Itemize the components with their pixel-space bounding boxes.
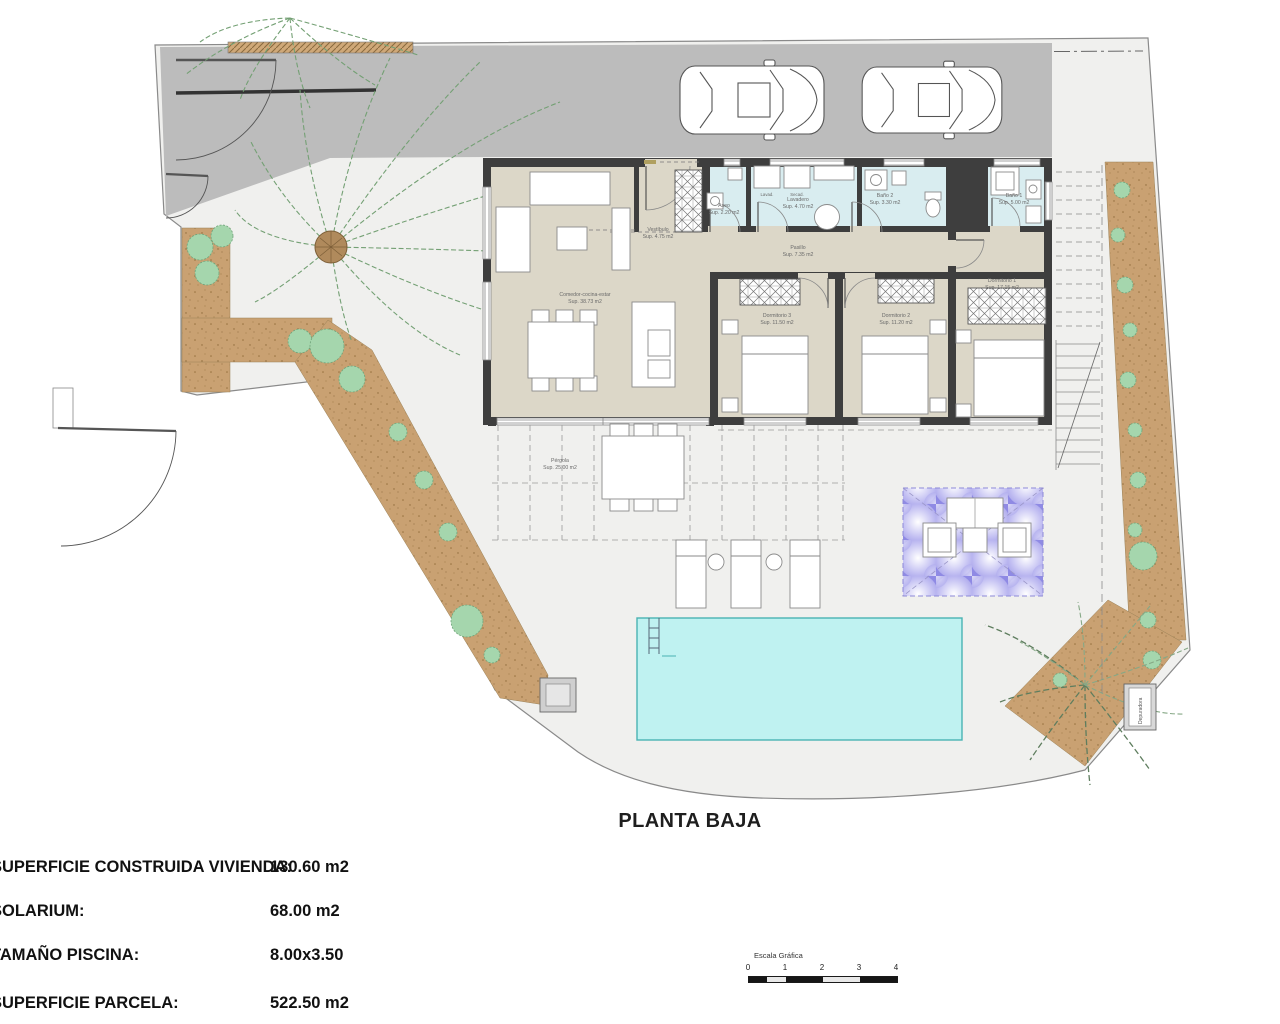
- stat-label: SUPERFICIE PARCELA:: [0, 994, 179, 1013]
- washer: [754, 166, 780, 188]
- stat-value: 522.50 m2: [270, 994, 349, 1013]
- label-dormitorio1-name: Dormitorio 1: [988, 278, 1016, 284]
- coffee-table: [557, 227, 587, 250]
- outdoor-dining-set: [602, 424, 684, 511]
- scale-tick: 1: [783, 963, 787, 972]
- label-vestibulo-name: Vestíbulo: [647, 227, 668, 233]
- dryer: [784, 166, 810, 188]
- wardrobe-vestibulo: [675, 170, 702, 232]
- dining-table-set: [528, 310, 597, 391]
- label-living-area: Sup. 38.73 m2: [568, 299, 602, 305]
- graphic-scale-ticks: 0 1 2 3 4: [748, 963, 896, 973]
- side-gate: [53, 388, 176, 546]
- label-bano1-name: Baño 1: [1006, 193, 1023, 199]
- label-aseo-name: Aseo: [718, 203, 730, 209]
- wardrobe-dormitorio3: [740, 279, 800, 305]
- tv-sideboard: [612, 208, 630, 270]
- equipment-label: Depuradora: [1138, 697, 1144, 724]
- swimming-pool: [637, 618, 962, 740]
- label-dormitorio3-area: Sup. 11.50 m2: [760, 320, 793, 326]
- lounge-table: [963, 528, 987, 552]
- label-dormitorio2-name: Dormitorio 2: [882, 313, 910, 319]
- kitchen-island: [632, 302, 675, 387]
- label-pasillo-area: Sup. 7.35 m2: [783, 252, 814, 258]
- floor-plan-page: Depuradora Comedor-cocina-estar Sup. 38.…: [0, 0, 1280, 1024]
- scale-tick: 3: [857, 963, 861, 972]
- stat-label: TAMAÑO PISCINA:: [0, 946, 139, 965]
- stat-label: SOLARIUM:: [0, 902, 85, 921]
- label-vestibulo-area: Sup. 4.75 m2: [643, 234, 674, 240]
- label-bano2-name: Baño 2: [877, 193, 894, 199]
- label-pergola-name: Pérgola: [551, 458, 569, 464]
- label-pasillo-name: Pasillo: [790, 245, 805, 251]
- stat-value: 130.60 m2: [270, 858, 349, 877]
- label-dormitorio1-area: Sup. 17.15 m2: [985, 285, 1019, 291]
- label-dormitorio2-area: Sup. 11.20 m2: [879, 320, 912, 326]
- sun-loungers: [676, 540, 820, 608]
- graphic-scale-bar: [748, 976, 898, 983]
- label-pergola-area: Sup. 25.00 m2: [543, 465, 577, 471]
- label-bano2-area: Sup. 3.30 m2: [870, 200, 901, 206]
- scale-tick: 4: [894, 963, 898, 972]
- stat-value: 8.00x3.50: [270, 946, 343, 965]
- graphic-scale-label: Escala Gráfica: [754, 951, 803, 960]
- label-dormitorio3-name: Dormitorio 3: [763, 313, 791, 319]
- laundry-sink: [815, 205, 840, 230]
- car-2: [862, 61, 1002, 139]
- label-lavadero-name: Lavadero: [787, 197, 809, 203]
- pergola-lounge: [903, 488, 1043, 596]
- floor-pasillo: [705, 232, 955, 276]
- wardrobe-dormitorio2: [878, 279, 934, 303]
- sofa-left: [496, 207, 530, 272]
- label-lavadero-area: Sup. 4.70 m2: [783, 204, 814, 210]
- label-living-name: Comedor-cocina-estar: [559, 292, 611, 298]
- wardrobe-dormitorio1: [968, 288, 1046, 324]
- entrance-threshold: [644, 160, 656, 164]
- scale-tick: 2: [820, 963, 824, 972]
- side-table-2: [766, 554, 782, 570]
- stat-label: SUPERFICIE CONSTRUIDA VIVIENDA:: [0, 858, 292, 877]
- scale-tick: 0: [746, 963, 750, 972]
- sofa-top: [530, 172, 610, 205]
- label-aseo-area: Sup. 2.20 m2: [709, 210, 740, 216]
- page-title: PLANTA BAJA: [558, 810, 822, 833]
- utility-box-garden: [540, 678, 576, 712]
- side-table-1: [708, 554, 724, 570]
- pool-equipment-box: Depuradora: [1124, 684, 1156, 730]
- label-bano1-area: Sup. 5.00 m2: [999, 200, 1030, 206]
- label-dryer: Secad.: [790, 192, 803, 197]
- car-1: [680, 60, 824, 140]
- label-washer: Lavad.: [761, 192, 774, 197]
- perimeter-hatch-strip: [228, 42, 413, 53]
- stat-value: 68.00 m2: [270, 902, 340, 921]
